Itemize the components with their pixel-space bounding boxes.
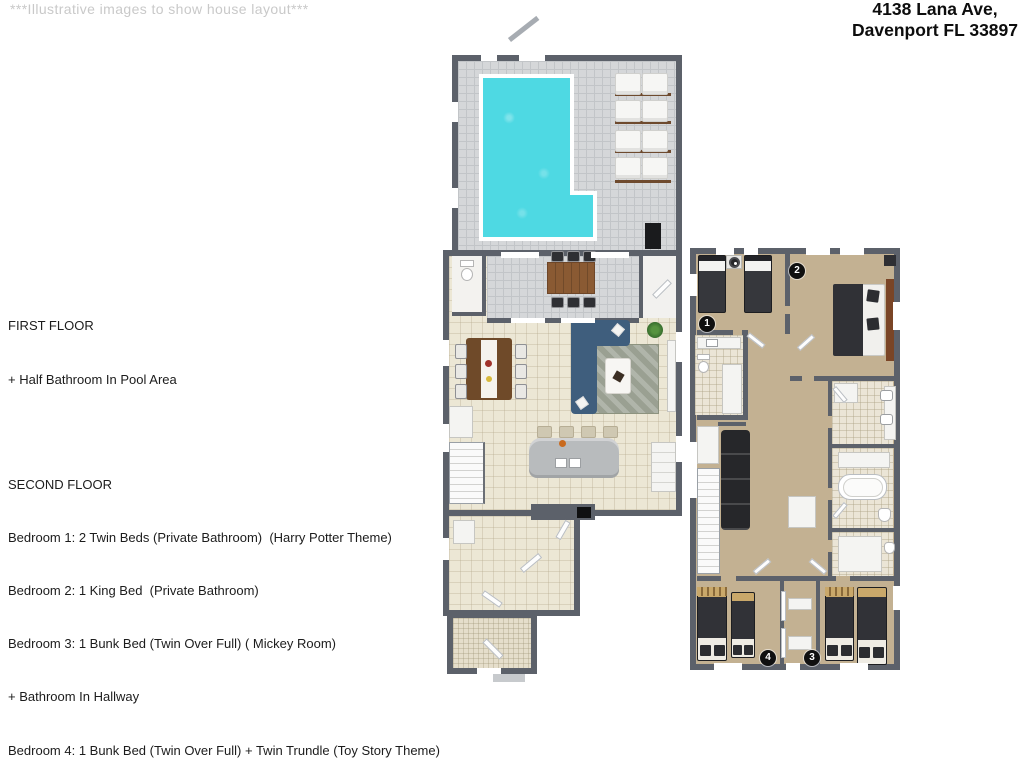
- pillow: [714, 645, 725, 656]
- bar-stool: [581, 426, 596, 438]
- headboard-slats: [697, 587, 727, 596]
- shower: [722, 364, 742, 414]
- window: [690, 442, 697, 498]
- sliding-glass-door: [561, 318, 595, 323]
- twin-bed: [698, 255, 726, 313]
- dining-chair: [455, 384, 467, 399]
- tv: [577, 507, 591, 518]
- toilet: [698, 361, 709, 373]
- screen-window: [452, 102, 458, 122]
- wall: [828, 428, 832, 488]
- closet-door: [781, 591, 786, 621]
- pantry: [651, 442, 676, 492]
- room-marker-1: 1: [699, 316, 715, 332]
- toilet: [884, 542, 895, 554]
- closet-door: [781, 628, 786, 658]
- bar-stool: [603, 426, 618, 438]
- wall: [785, 248, 790, 306]
- dining-chair: [515, 364, 527, 379]
- pillow: [744, 645, 753, 655]
- fan-hub: [734, 262, 737, 265]
- first-floor-plan: [441, 40, 693, 683]
- window: [443, 538, 449, 560]
- plant: [647, 322, 663, 338]
- window: [443, 340, 449, 366]
- centerpiece: [486, 376, 492, 382]
- sink: [706, 339, 718, 347]
- pillow: [859, 647, 870, 658]
- nightstand: [726, 255, 742, 269]
- shower: [838, 452, 890, 468]
- loft-sofa: [721, 430, 750, 530]
- bar-stool: [559, 426, 574, 438]
- vanity: [697, 337, 741, 349]
- wall: [828, 444, 898, 448]
- deck-opening: [501, 252, 539, 258]
- wall: [785, 314, 790, 334]
- floor-description: FIRST FLOOR + Half Bathroom In Pool Area…: [8, 282, 440, 777]
- loft-desk: [697, 426, 719, 464]
- dining-chair: [455, 344, 467, 359]
- toilet: [461, 268, 473, 281]
- second-floor-plan: 1 2 4 3: [688, 246, 904, 672]
- side-landing: [639, 256, 676, 318]
- pillow: [827, 645, 838, 656]
- lounge-chair: [615, 100, 641, 122]
- wall: [828, 552, 832, 578]
- door-swing: [652, 279, 672, 299]
- centerpiece: [485, 360, 492, 367]
- window: [806, 248, 830, 255]
- pillow: [866, 317, 879, 330]
- patio-chair: [551, 251, 564, 262]
- room-marker-2: 2: [789, 263, 805, 279]
- closet-shelf: [788, 598, 812, 610]
- fan-icon: [729, 257, 740, 268]
- lounge-chair: [642, 130, 668, 152]
- coffee-table: [605, 358, 631, 394]
- sliding-glass-door: [511, 318, 545, 323]
- wall: [697, 576, 721, 581]
- illustrative-note: ***Illustrative images to show house lay…: [10, 1, 309, 17]
- king-bed-duvet: [833, 284, 863, 356]
- screen-window: [481, 55, 497, 61]
- console: [667, 340, 676, 412]
- sink: [569, 458, 581, 468]
- bedroom1-line: Bedroom 1: 2 Twin Beds (Private Bathroom…: [8, 529, 440, 547]
- deck-opening: [591, 252, 629, 258]
- patio-dining-table: [547, 262, 595, 294]
- wall: [743, 330, 748, 420]
- spacer: [8, 424, 440, 441]
- pool-gate: [508, 16, 539, 42]
- staircase: [697, 468, 720, 574]
- lounge-chair: [615, 73, 641, 95]
- lounge-chair: [615, 130, 641, 152]
- gate-opening: [519, 55, 545, 61]
- twin-bed: [744, 255, 772, 313]
- window: [690, 274, 697, 296]
- window: [716, 248, 734, 255]
- wall: [814, 376, 898, 381]
- dining-chair: [515, 344, 527, 359]
- porch-step: [493, 674, 525, 682]
- lounge-chair: [615, 157, 641, 179]
- bedroom2-line: Bedroom 2: 1 King Bed (Private Bathroom): [8, 582, 440, 600]
- window: [786, 663, 800, 670]
- address-line1: 4138 Lana Ave,: [852, 0, 1018, 20]
- shower: [838, 536, 882, 572]
- half-bathroom: [452, 256, 486, 316]
- window: [840, 663, 868, 670]
- staircase: [449, 442, 485, 504]
- closet-shelf: [788, 636, 812, 650]
- pillow: [841, 645, 852, 656]
- wall: [850, 576, 898, 581]
- decor-bowl: [559, 440, 566, 447]
- property-address: 4138 Lana Ave, Davenport FL 33897: [852, 0, 1018, 41]
- grill: [645, 223, 661, 249]
- second-floor-title: SECOND FLOOR: [8, 476, 440, 494]
- toilet: [878, 508, 891, 522]
- wall: [736, 576, 836, 581]
- lounge-chair: [642, 100, 668, 122]
- dining-table: [466, 338, 512, 400]
- sink: [555, 458, 567, 468]
- window: [714, 663, 742, 670]
- table-runner: [481, 340, 497, 398]
- lounge-frame: [615, 180, 671, 183]
- bedroom3-line: Bedroom 3: 1 Bunk Bed (Twin Over Full) (…: [8, 635, 440, 653]
- media-wall: [531, 504, 595, 520]
- headboard-slats: [825, 587, 854, 596]
- wall: [828, 500, 832, 540]
- sink: [880, 414, 893, 425]
- bedroom4-line: Bedroom 4: 1 Bunk Bed (Twin Over Full) +…: [8, 742, 440, 760]
- kitchen-counter: [449, 406, 473, 438]
- window: [893, 302, 900, 330]
- table-decor: [612, 370, 624, 382]
- pillow: [733, 645, 742, 655]
- patio-chair: [567, 251, 580, 262]
- bathtub: [838, 474, 887, 500]
- pool: [483, 78, 570, 237]
- window: [443, 424, 449, 452]
- room-marker-3: 3: [804, 650, 820, 666]
- hall-closet: [788, 496, 816, 528]
- tub-basin: [843, 478, 883, 497]
- window: [893, 586, 900, 610]
- lounge-chair: [642, 73, 668, 95]
- wall: [790, 376, 802, 381]
- front-door-opening: [477, 668, 501, 674]
- bar-stool: [537, 426, 552, 438]
- dining-chair: [455, 364, 467, 379]
- window: [840, 248, 864, 255]
- window: [676, 436, 682, 462]
- address-line2: Davenport FL 33897: [852, 20, 1018, 41]
- wall: [828, 376, 832, 416]
- pillow: [873, 647, 884, 658]
- hall-bath-line: + Bathroom In Hallway: [8, 688, 440, 706]
- wall: [718, 422, 746, 426]
- patio-chair: [551, 297, 564, 308]
- sink: [880, 390, 893, 401]
- toilet: [697, 354, 710, 360]
- screen-window: [452, 188, 458, 208]
- toilet: [460, 260, 474, 267]
- dining-chair: [515, 384, 527, 399]
- pillow: [700, 645, 711, 656]
- pillow: [866, 289, 880, 303]
- first-floor-title: FIRST FLOOR: [8, 317, 440, 335]
- wall: [697, 415, 748, 420]
- room-marker-4: 4: [760, 650, 776, 666]
- patio-chair: [583, 297, 596, 308]
- patio-chair: [567, 297, 580, 308]
- nightstand: [884, 255, 896, 266]
- closet: [453, 520, 475, 544]
- kitchen-island: [529, 438, 619, 478]
- wall: [828, 528, 898, 532]
- first-floor-line: + Half Bathroom In Pool Area: [8, 371, 440, 389]
- pool: [570, 195, 593, 237]
- window: [676, 332, 682, 362]
- window: [744, 248, 758, 255]
- lounge-chair: [642, 157, 668, 179]
